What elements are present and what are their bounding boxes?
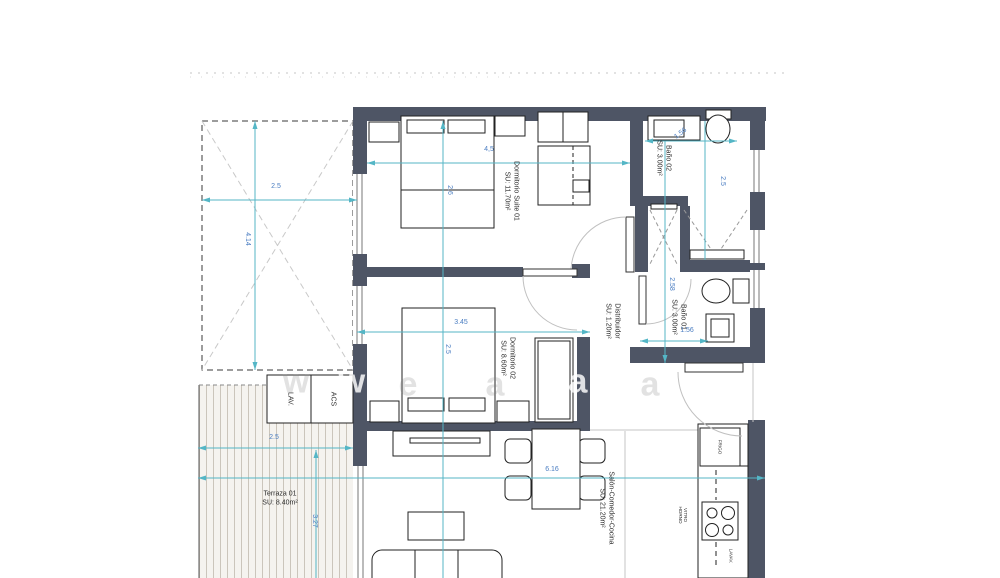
- room-label-distribuidor: Distribuidor SU: 1.20m²: [604, 303, 621, 338]
- room-name: Dormitorio 02: [507, 337, 516, 379]
- room-name: Salón-Comedor-Cocina: [606, 471, 615, 544]
- floor-plan-drawing: [0, 0, 1000, 578]
- appliance-label-fridge: FRIGO: [717, 440, 722, 455]
- room-label-bano-02: Baño 02 SU: 3.00m²: [655, 140, 672, 175]
- appliance-label-dishwasher: LAVAV.: [728, 549, 733, 564]
- room-area: SU: 8.40m²: [262, 499, 297, 508]
- kitchen-counter: [698, 424, 748, 578]
- dim-bano01-width: 1.56: [680, 327, 694, 335]
- dim-terraza-width: 2.5: [269, 434, 279, 442]
- dim-suite-width: 4,5: [484, 146, 494, 154]
- hob-line-1: VITRO: [683, 506, 688, 523]
- appliance-label-hob: VITRO HORNO: [678, 506, 688, 523]
- room-label-dormitorio-02: Dormitorio 02 SU: 8.60m²: [499, 337, 516, 379]
- room-area: SU: 3.00m²: [670, 299, 679, 334]
- top-ruler-strip: [190, 73, 788, 77]
- room-area: SU: 1.20m²: [604, 303, 613, 338]
- room-area: SU: 11.70m²: [503, 161, 512, 221]
- closet-label-lav: LAV.: [285, 392, 294, 406]
- room-name: Distribuidor: [612, 303, 621, 338]
- room-area: SU: 21.20m²: [598, 471, 607, 544]
- room-name: Terraza 01: [262, 491, 297, 500]
- dim-patio-height: 4.14: [243, 232, 251, 246]
- room-area: SU: 8.60m²: [499, 337, 508, 379]
- watermark-letter: a: [569, 363, 588, 402]
- bathroom1-fixtures: [702, 279, 749, 342]
- watermark-letter: w: [339, 363, 365, 402]
- hob-line-2: HORNO: [678, 506, 683, 523]
- dim-bano02-height: 2.5: [718, 176, 726, 186]
- room-label-dormitorio-suite-01: Dormitorio Suite 01 SU: 11.70m²: [503, 161, 520, 221]
- room-name: Dormitorio Suite 01: [511, 161, 520, 221]
- room-name: Baño 02: [663, 140, 672, 175]
- dim-salon-width: 6.16: [545, 466, 559, 474]
- dim-dorm02-width: 3.45: [454, 319, 468, 327]
- dim-patio-width: 2.5: [271, 183, 281, 191]
- floor-plan-canvas: w w e a a a Dormitorio Suite 01 SU: 11.7…: [0, 0, 1000, 578]
- closet-label-acs: ACS: [328, 392, 337, 406]
- watermark-letter: a: [641, 366, 660, 405]
- room-label-terraza-01: Terraza 01 SU: 8.40m²: [262, 491, 297, 508]
- bathroom2-fixtures: [648, 110, 747, 264]
- watermark-letter: e: [399, 366, 418, 405]
- dim-suite-height: 2.6: [445, 185, 453, 195]
- room-label-salon-comedor-cocina: Salón-Comedor-Cocina SU: 21.20m²: [598, 471, 615, 544]
- room-area: SU: 3.00m²: [655, 140, 664, 175]
- patio-area: [202, 121, 353, 370]
- dim-hall-height: 2.58: [667, 277, 675, 291]
- living-room-furniture: [372, 429, 605, 578]
- suite-furniture: [369, 112, 590, 228]
- dim-dorm02-height: 2.5: [443, 344, 451, 354]
- dim-terraza-height: 3.27: [310, 514, 318, 528]
